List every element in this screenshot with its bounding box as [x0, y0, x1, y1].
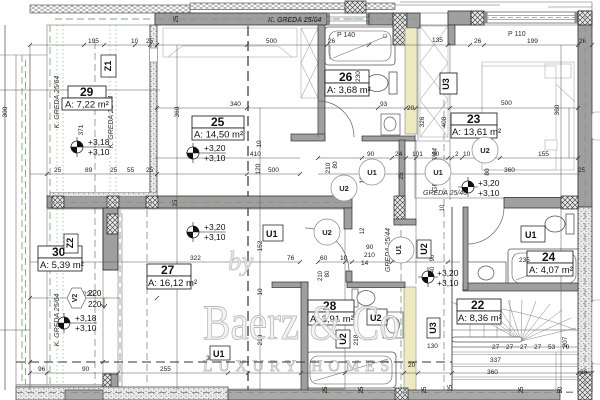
svg-text:+3,20: +3,20 [437, 268, 459, 278]
svg-text:408: 408 [441, 116, 448, 127]
svg-text:220: 220 [88, 289, 102, 298]
svg-text:25: 25 [448, 384, 454, 391]
svg-text:152: 152 [257, 240, 264, 251]
svg-text:27: 27 [161, 263, 175, 277]
svg-text:K. GREDA 25/64: K. GREDA 25/64 [54, 76, 61, 129]
svg-text:90: 90 [367, 151, 375, 158]
svg-text:+3,10: +3,10 [88, 147, 110, 157]
svg-text:+3,18: +3,18 [88, 137, 110, 147]
svg-text:25: 25 [359, 386, 365, 393]
svg-text:199: 199 [527, 38, 538, 45]
svg-text:A: 16,12 m²: A: 16,12 m² [148, 278, 197, 289]
svg-text:12: 12 [360, 227, 366, 234]
svg-text:LUXURY HOMES: LUXURY HOMES [203, 358, 395, 375]
svg-text:26: 26 [474, 38, 482, 45]
svg-text:30: 30 [52, 245, 66, 259]
svg-text:210: 210 [318, 270, 324, 281]
svg-text:96: 96 [38, 366, 46, 373]
svg-text:10: 10 [131, 38, 139, 45]
svg-text:360: 360 [174, 106, 181, 117]
svg-text:A: 5,39 m²: A: 5,39 m² [40, 260, 84, 271]
svg-text:14: 14 [361, 260, 369, 267]
svg-text:25: 25 [211, 115, 225, 129]
svg-text:80: 80 [332, 161, 339, 169]
svg-text:25: 25 [578, 167, 586, 174]
svg-text:A: 14,50 m²: A: 14,50 m² [194, 130, 243, 141]
svg-text:27: 27 [492, 344, 500, 351]
svg-text:U3: U3 [428, 322, 438, 334]
svg-text:24: 24 [395, 151, 403, 158]
svg-text:+3,20: +3,20 [478, 178, 500, 188]
svg-text:26: 26 [579, 38, 587, 45]
svg-text:255: 255 [160, 366, 171, 373]
svg-text:25: 25 [422, 386, 428, 393]
svg-text:23: 23 [467, 112, 481, 126]
svg-text:P 110: P 110 [508, 31, 526, 38]
svg-text:500: 500 [268, 167, 279, 174]
svg-text:+3,10: +3,10 [204, 153, 226, 163]
svg-text:25: 25 [54, 167, 62, 174]
svg-text:+3,18: +3,18 [75, 313, 97, 323]
svg-text:360: 360 [554, 104, 561, 115]
svg-text:322: 322 [190, 255, 201, 262]
svg-text:A: 7,22 m²: A: 7,22 m² [65, 100, 109, 111]
svg-text:25: 25 [146, 167, 154, 174]
svg-text:U2: U2 [480, 146, 490, 155]
svg-text:U1: U1 [525, 230, 537, 240]
svg-text:25: 25 [323, 386, 329, 393]
svg-text:410: 410 [250, 151, 261, 158]
svg-text:25: 25 [519, 386, 525, 393]
svg-text:+3,20: +3,20 [204, 143, 226, 153]
svg-text:A: 3,68 m²: A: 3,68 m² [327, 85, 371, 96]
svg-text:80: 80 [325, 270, 331, 277]
svg-text:90: 90 [82, 366, 90, 373]
svg-text:U3: U3 [441, 78, 451, 90]
svg-text:220: 220 [88, 300, 102, 309]
svg-text:130: 130 [427, 343, 438, 350]
svg-text:10: 10 [256, 140, 263, 148]
svg-text:210: 210 [325, 162, 332, 173]
svg-text:P 140: P 140 [337, 32, 355, 39]
svg-text:+3,20: +3,20 [204, 222, 226, 232]
svg-text:210: 210 [364, 252, 375, 259]
svg-text:20: 20 [408, 362, 416, 369]
svg-text:25: 25 [146, 38, 154, 45]
svg-text:27: 27 [520, 344, 528, 351]
svg-text:K. GREDA 25/64: K. GREDA 25/64 [268, 17, 322, 24]
svg-text:by: by [228, 246, 254, 276]
svg-text:26: 26 [580, 369, 588, 376]
svg-text:22: 22 [471, 298, 485, 312]
svg-text:U1: U1 [367, 168, 377, 177]
svg-text:V2: V2 [72, 294, 79, 303]
svg-text:10: 10 [463, 151, 471, 158]
svg-text:89: 89 [85, 167, 93, 174]
svg-text:2: 2 [455, 151, 459, 158]
svg-text:27: 27 [534, 344, 542, 351]
svg-text:300: 300 [2, 106, 9, 117]
svg-text:90: 90 [366, 244, 374, 251]
svg-text:Z1: Z1 [103, 61, 113, 72]
svg-text:371: 371 [78, 124, 85, 135]
svg-text:360: 360 [487, 369, 498, 376]
svg-text:A: 4,07 m²: A: 4,07 m² [529, 265, 573, 276]
svg-text:60: 60 [320, 255, 328, 262]
svg-text:25: 25 [110, 167, 118, 174]
svg-text:+3,10: +3,10 [204, 232, 226, 242]
svg-text:26: 26 [339, 70, 353, 84]
svg-text:360: 360 [504, 167, 515, 174]
svg-text:A: 8,36 m²: A: 8,36 m² [458, 313, 502, 324]
svg-text:53: 53 [548, 344, 556, 351]
svg-text:10: 10 [440, 204, 446, 211]
svg-text:80: 80 [484, 168, 491, 176]
svg-text:50: 50 [558, 386, 564, 393]
svg-text:GREDA 25/40: GREDA 25/40 [423, 190, 467, 197]
svg-text:55: 55 [127, 167, 135, 174]
svg-text:93: 93 [380, 101, 388, 108]
svg-text:76: 76 [287, 255, 295, 262]
svg-text:U2: U2 [322, 228, 332, 237]
svg-text:+3,10: +3,10 [437, 278, 459, 288]
svg-text:U2: U2 [419, 243, 429, 255]
svg-text:A: 13,61 m²: A: 13,61 m² [452, 127, 501, 138]
svg-text:207: 207 [562, 336, 569, 347]
svg-text:+3,10: +3,10 [478, 188, 500, 198]
svg-text:235: 235 [519, 257, 530, 264]
svg-text:U1: U1 [433, 168, 443, 177]
svg-text:195: 195 [88, 38, 99, 45]
svg-text:Z2: Z2 [65, 238, 75, 249]
svg-text:25: 25 [398, 172, 405, 180]
svg-text:120: 120 [255, 163, 262, 174]
svg-text:27: 27 [506, 344, 514, 351]
svg-text:U1: U1 [266, 229, 278, 239]
svg-text:26: 26 [328, 38, 336, 45]
svg-text:340: 340 [230, 101, 241, 108]
svg-text:135: 135 [432, 37, 443, 44]
svg-text:24: 24 [542, 250, 556, 264]
svg-text:20: 20 [407, 105, 415, 112]
svg-text:230: 230 [355, 71, 362, 82]
svg-text:U2: U2 [339, 184, 349, 193]
svg-text:29: 29 [80, 85, 94, 99]
svg-text:326: 326 [419, 116, 426, 127]
svg-text:500: 500 [266, 38, 277, 45]
svg-text:+3,10: +3,10 [75, 323, 97, 333]
svg-text:337: 337 [490, 357, 501, 364]
svg-text:500: 500 [501, 100, 512, 107]
svg-text:Baerz & Co: Baerz & Co [203, 294, 400, 350]
svg-text:155: 155 [538, 151, 549, 158]
svg-text:U1: U1 [394, 245, 403, 255]
